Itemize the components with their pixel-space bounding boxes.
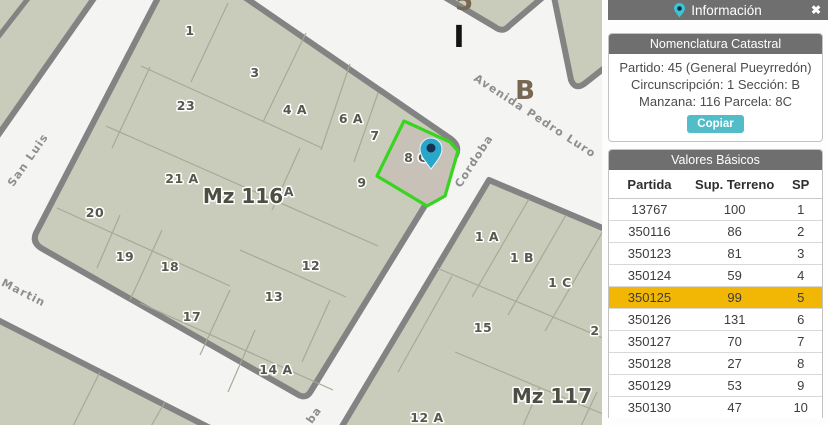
circunscripcion-line: Circunscripción: 1 Sección: B xyxy=(611,76,820,93)
table-header-row: PartidaSup. TerrenoSP xyxy=(609,170,822,199)
parcel-label-1: 1 xyxy=(185,23,194,38)
partida-cell: 350127 xyxy=(609,331,690,353)
parcel-label-17: 17 xyxy=(183,309,201,324)
close-icon[interactable]: ✖ xyxy=(811,2,821,18)
table-row[interactable]: 350123813 xyxy=(609,243,822,265)
sup-terreno-cell: 81 xyxy=(690,243,779,265)
sup-terreno-cell: 100 xyxy=(690,199,779,221)
sp-cell: 4 xyxy=(779,265,822,287)
block-label-mz117: Mz 117 xyxy=(512,384,592,408)
sup-terreno-cell: 131 xyxy=(690,309,779,331)
parcel-label-3: 3 xyxy=(250,65,259,80)
partida-cell: 13767 xyxy=(609,199,690,221)
sp-cell: 10 xyxy=(779,397,822,419)
parcel-label-12a: 12 A xyxy=(410,410,443,425)
partida-cell: 350129 xyxy=(609,375,690,397)
sp-cell: 6 xyxy=(779,309,822,331)
street-label-partial: ba xyxy=(304,404,325,425)
parcel-label-19: 19 xyxy=(116,249,134,264)
valores-card: Valores Básicos PartidaSup. TerrenoSP 13… xyxy=(608,149,823,418)
sp-cell: 1 xyxy=(779,199,822,221)
panel-title: Información xyxy=(691,3,762,18)
sp-cell: 5 xyxy=(779,287,822,309)
sp-cell: 2 xyxy=(779,221,822,243)
parcel-label-14a: 14 A xyxy=(259,362,292,377)
partida-cell: 350126 xyxy=(609,309,690,331)
sup-terreno-cell: 70 xyxy=(690,331,779,353)
valores-table-body: 1376710013501168623501238133501245943501… xyxy=(609,199,822,419)
sup-terreno-cell: 86 xyxy=(690,221,779,243)
valores-table: PartidaSup. TerrenoSP 137671001350116862… xyxy=(609,170,822,418)
partida-cell: 350125 xyxy=(609,287,690,309)
table-row[interactable]: 350129539 xyxy=(609,375,822,397)
sup-terreno-cell: 53 xyxy=(690,375,779,397)
parcel-label-9: 9 xyxy=(357,175,366,190)
block-west[interactable] xyxy=(0,0,97,141)
map-canvas: 13234 A6 A78 C921 AA20191812131714 A1 A1… xyxy=(0,0,602,425)
sp-cell: 9 xyxy=(779,375,822,397)
partida-cell: 350123 xyxy=(609,243,690,265)
parcel-label-13: 13 xyxy=(265,289,283,304)
sp-cell: 7 xyxy=(779,331,822,353)
block-label-mz116: Mz 116 xyxy=(203,184,283,208)
manzana-line: Manzana: 116 Parcela: 8C xyxy=(611,93,820,110)
table-row[interactable]: 350125995 xyxy=(609,287,822,309)
sup-terreno-cell: 27 xyxy=(690,353,779,375)
section-label-i: I xyxy=(453,20,464,55)
sp-cell: 3 xyxy=(779,243,822,265)
valores-title: Valores Básicos xyxy=(609,150,822,170)
table-row[interactable]: 3501261316 xyxy=(609,309,822,331)
location-pin-icon xyxy=(674,3,685,18)
table-row[interactable]: 350116862 xyxy=(609,221,822,243)
parcel-label-2: 2 xyxy=(590,323,599,338)
partida-cell: 350124 xyxy=(609,265,690,287)
parcel-label-1a: 1 A xyxy=(475,229,499,244)
table-row[interactable]: 350127707 xyxy=(609,331,822,353)
sup-terreno-cell: 99 xyxy=(690,287,779,309)
nomenclatura-body: Partido: 45 (General Pueyrredón) Circuns… xyxy=(609,54,822,141)
col-header-partida: Partida xyxy=(609,170,690,199)
sup-terreno-cell: 59 xyxy=(690,265,779,287)
nomenclatura-card: Nomenclatura Catastral Partido: 45 (Gene… xyxy=(608,33,823,142)
col-header-sup-terreno: Sup. Terreno xyxy=(690,170,779,199)
block-north-east[interactable] xyxy=(553,0,602,86)
partida-cell: 350130 xyxy=(609,397,690,419)
parcel-label-4a: 4 A xyxy=(283,102,307,117)
parcel-label-21a: 21 A xyxy=(165,171,198,186)
parcel-label-7: 7 xyxy=(370,128,379,143)
table-row[interactable]: 3501304710 xyxy=(609,397,822,419)
street-label-san-luis: San Luis xyxy=(5,131,51,189)
parcel-label-6a: 6 A xyxy=(339,111,363,126)
section-label-partial: 5 xyxy=(455,0,473,17)
parcel-label-20: 20 xyxy=(86,205,104,220)
cadastral-map[interactable]: 13234 A6 A78 C921 AA20191812131714 A1 A1… xyxy=(0,0,602,425)
parcel-label-1c: 1 C xyxy=(548,275,572,290)
nomenclatura-title: Nomenclatura Catastral xyxy=(609,34,822,54)
partida-cell: 350128 xyxy=(609,353,690,375)
col-header-sp: SP xyxy=(779,170,822,199)
sup-terreno-cell: 47 xyxy=(690,397,779,419)
table-row[interactable]: 137671001 xyxy=(609,199,822,221)
table-row[interactable]: 350124594 xyxy=(609,265,822,287)
panel-header: Información ✖ xyxy=(608,0,828,20)
info-panel: Información ✖ Nomenclatura Catastral Par… xyxy=(602,0,828,425)
parcel-label-18: 18 xyxy=(161,259,179,274)
app-window: 13234 A6 A78 C921 AA20191812131714 A1 A1… xyxy=(0,0,828,425)
parcel-label-23: 23 xyxy=(177,98,195,113)
sp-cell: 8 xyxy=(779,353,822,375)
partida-cell: 350116 xyxy=(609,221,690,243)
table-row[interactable]: 350128278 xyxy=(609,353,822,375)
block-southwest[interactable] xyxy=(0,318,210,425)
partido-line: Partido: 45 (General Pueyrredón) xyxy=(611,59,820,76)
copiar-button[interactable]: Copiar xyxy=(687,115,743,133)
parcel-label-15: 15 xyxy=(474,320,492,335)
parcel-label-1b: 1 B xyxy=(510,250,534,265)
parcel-label-a-partial: A xyxy=(284,184,294,199)
street-label-martin: Martin xyxy=(0,276,48,309)
parcel-label-12: 12 xyxy=(302,258,320,273)
